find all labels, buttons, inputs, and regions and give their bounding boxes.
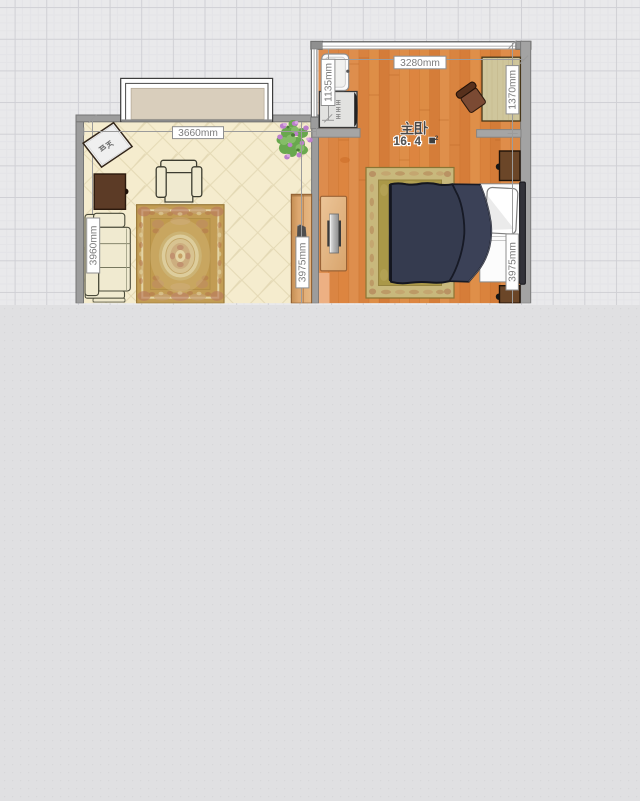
svg-text:3660mm: 3660mm [178,128,218,139]
svg-text:16. 4: 16. 4 [394,136,422,148]
svg-text:3975mm: 3975mm [298,243,309,283]
svg-text:3975mm: 3975mm [507,242,518,282]
svg-text:3960mm: 3960mm [89,226,100,266]
svg-text:2: 2 [435,135,439,142]
svg-text:1135mm: 1135mm [323,63,334,102]
svg-text:3280mm: 3280mm [400,58,440,69]
svg-text:1370mm: 1370mm [508,70,519,110]
